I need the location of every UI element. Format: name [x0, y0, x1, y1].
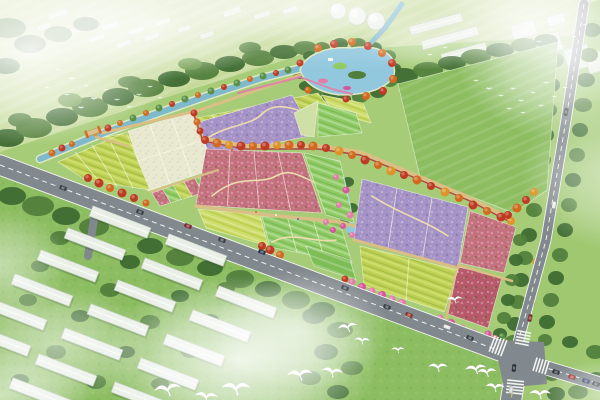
tree-highlight	[344, 187, 347, 190]
tree-highlight	[336, 148, 340, 152]
tree-highlight	[274, 71, 277, 74]
tree-highlight	[298, 142, 301, 145]
tree-highlight	[250, 143, 253, 146]
tree-cluster	[562, 336, 578, 348]
tree-cluster	[539, 315, 555, 329]
tree-highlight	[484, 208, 487, 211]
pond-flowerbed	[318, 79, 328, 84]
tree-highlight	[192, 110, 195, 113]
pedestrian	[275, 214, 277, 216]
tree-highlight	[486, 331, 489, 334]
pond-flowerbed	[343, 86, 351, 90]
tree-highlight	[348, 212, 351, 215]
tree-highlight	[198, 128, 201, 131]
tree-highlight	[349, 152, 352, 155]
tree-highlight	[344, 96, 347, 99]
tree-highlight	[388, 168, 392, 172]
tree-highlight	[362, 157, 366, 161]
tree-highlight	[170, 102, 173, 105]
tree-highlight	[334, 175, 337, 178]
tree-highlight	[500, 334, 503, 337]
tree-cluster	[509, 254, 523, 266]
tree-highlight	[375, 162, 378, 165]
haze-cloud	[210, 270, 390, 390]
tree-highlight	[442, 189, 446, 193]
tree-highlight	[144, 200, 147, 203]
tree-highlight	[222, 85, 225, 88]
tree-highlight	[131, 195, 134, 198]
tree-highlight	[337, 203, 340, 206]
tree-highlight	[262, 143, 266, 147]
tree-highlight	[390, 76, 393, 79]
tree-highlight	[157, 105, 160, 108]
tree-cluster	[501, 294, 515, 306]
tree-highlight	[456, 195, 459, 198]
haze-cloud	[360, 10, 500, 70]
tree-cluster	[552, 248, 568, 262]
tree-cluster	[22, 196, 54, 216]
tree-highlight	[341, 224, 344, 227]
tree-cluster	[497, 312, 511, 324]
tree-highlight	[470, 202, 474, 206]
tree-highlight	[196, 93, 199, 96]
tree-highlight	[214, 140, 218, 144]
tree-highlight	[379, 292, 382, 295]
tree-highlight	[401, 172, 404, 175]
tree-highlight	[414, 177, 418, 181]
tree-highlight	[267, 247, 271, 251]
pedestrian	[297, 218, 299, 220]
tree-cluster	[543, 293, 559, 307]
tree-cluster	[513, 234, 527, 246]
tree-highlight	[505, 212, 508, 215]
tree-highlight	[183, 96, 186, 99]
tree-highlight	[310, 143, 314, 147]
tree-highlight	[259, 243, 262, 246]
tree-highlight	[324, 220, 327, 223]
tree-highlight	[226, 142, 229, 145]
tree-highlight	[428, 183, 431, 186]
tree-highlight	[370, 288, 373, 291]
tree-cluster	[548, 271, 564, 285]
tree-highlight	[261, 73, 264, 76]
pedestrian	[231, 149, 233, 151]
tree-highlight	[195, 119, 198, 122]
tree-cluster	[52, 207, 80, 225]
tree-highlight	[323, 145, 326, 148]
tree-highlight	[85, 175, 88, 178]
tree-highlight	[70, 142, 73, 145]
tree-highlight	[238, 143, 242, 147]
pond-island	[348, 71, 366, 79]
tree-highlight	[514, 205, 518, 209]
tree-highlight	[363, 93, 366, 96]
tree-cluster	[137, 238, 163, 254]
tree-highlight	[277, 252, 280, 255]
masterplan-canvas	[0, 0, 600, 400]
tree-highlight	[498, 214, 502, 218]
tree-highlight	[107, 185, 110, 188]
tree-highlight	[235, 80, 238, 83]
tree-highlight	[60, 145, 63, 148]
tree-highlight	[274, 142, 277, 145]
car-windshield	[513, 366, 516, 369]
tree-highlight	[96, 180, 100, 184]
tree-highlight	[50, 150, 53, 153]
tree-highlight	[119, 190, 123, 194]
car-windshield	[510, 388, 513, 391]
tree-highlight	[380, 88, 383, 91]
aerial-masterplan-rendering	[0, 0, 600, 400]
tree-highlight	[202, 137, 205, 140]
tree-highlight	[248, 77, 251, 80]
pedestrian	[255, 211, 257, 213]
tree-highlight	[306, 87, 309, 90]
tree-highlight	[209, 88, 212, 91]
tree-highlight	[286, 142, 290, 146]
tree-highlight	[350, 233, 353, 236]
tree-highlight	[331, 228, 334, 231]
